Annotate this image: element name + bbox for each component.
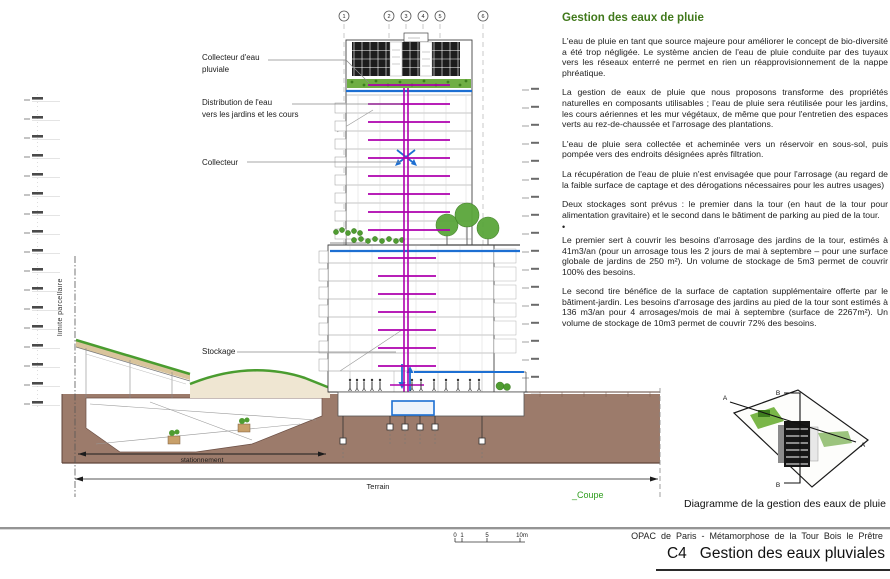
grid-bubble-label: 3 <box>404 14 407 20</box>
label-collecteur-eau-pluviale: Collecteur d'eau pluviale <box>202 52 260 76</box>
right-elevation-ticks <box>522 88 539 396</box>
scale-tick-label: 1 <box>460 533 464 539</box>
section-marker: A <box>723 395 728 402</box>
dimension-terrain: Terrain <box>75 477 658 492</box>
label-stockage: Stockage <box>202 346 235 358</box>
storage-reservoir <box>392 401 434 415</box>
bullet-point: • <box>562 222 888 233</box>
footer-divider <box>0 527 890 530</box>
paragraph: L'eau de pluie en tant que source majeur… <box>562 36 888 78</box>
project-name: OPAC de Paris - Métamorphose de la Tour … <box>626 531 888 541</box>
site-plan-tower-footprint <box>784 421 810 467</box>
scale-tick-label: 5 <box>485 533 489 539</box>
label-limite-parcellaire: limite parcellaire <box>57 262 64 336</box>
scale-tick-label: 0 <box>453 533 457 539</box>
grid-bubble-label: 4 <box>421 14 424 20</box>
label-line: Collecteur d'eau <box>202 52 260 64</box>
sheet-name: Gestion des eaux pluviales <box>700 545 885 563</box>
stationnement-label: stationnement <box>181 457 224 464</box>
sheet-title-underline <box>656 569 890 571</box>
label-distribution: Distribution de l'eau vers les jardins e… <box>202 97 298 121</box>
grid-bubble-label: 1 <box>342 14 345 20</box>
page-title: Gestion des eaux de pluie <box>562 12 888 24</box>
section-marker: A <box>861 442 866 449</box>
scale-bar: 0 1 5 10m <box>450 530 540 546</box>
grid-bubble-label: 2 <box>387 14 390 20</box>
section-marker: B <box>776 390 780 397</box>
paragraph: La gestion de eaux de pluie que nous pro… <box>562 87 888 129</box>
paragraph: L'eau de pluie sera collectée et achemin… <box>562 139 888 160</box>
label-line: vers les jardins et les cours <box>202 109 298 121</box>
text-column: Gestion des eaux de pluie L'eau de pluie… <box>562 12 888 338</box>
left-elevation-ruler <box>24 94 60 410</box>
terrain-label: Terrain <box>367 482 390 491</box>
sheet-title: C4 Gestion des eaux pluviales <box>662 545 890 563</box>
label-line: Distribution de l'eau <box>202 97 298 109</box>
label-line: pluviale <box>202 64 260 76</box>
label-collecteur: Collecteur <box>202 157 238 169</box>
drawing-sheet: 1 2 3 4 5 6 <box>0 0 890 579</box>
scale-tick-label: 10m <box>516 533 528 539</box>
grid-bubble-label: 5 <box>438 14 441 20</box>
sheet-code: C4 <box>667 545 687 563</box>
site-plan-caption: Diagramme de la gestion des eaux de plui… <box>684 498 889 510</box>
section-marker: B <box>776 482 780 489</box>
grid-bubble-label: 6 <box>481 14 484 20</box>
site-plan-diagram: A B A B <box>700 383 890 495</box>
tower-section <box>319 40 528 392</box>
paragraph: La récupération de l'eau de pluie n'est … <box>562 169 888 190</box>
paragraph: Deux stockages sont prévus : le premier … <box>562 199 888 220</box>
paragraph: Le premier sert à couvrir les besoins d'… <box>562 235 888 277</box>
paragraph: Le second tire bénéfice de la surface de… <box>562 286 888 328</box>
grid-bubbles: 1 2 3 4 5 6 <box>339 11 488 21</box>
roof-collector <box>352 33 460 76</box>
coupe-label: _Coupe <box>571 490 604 500</box>
